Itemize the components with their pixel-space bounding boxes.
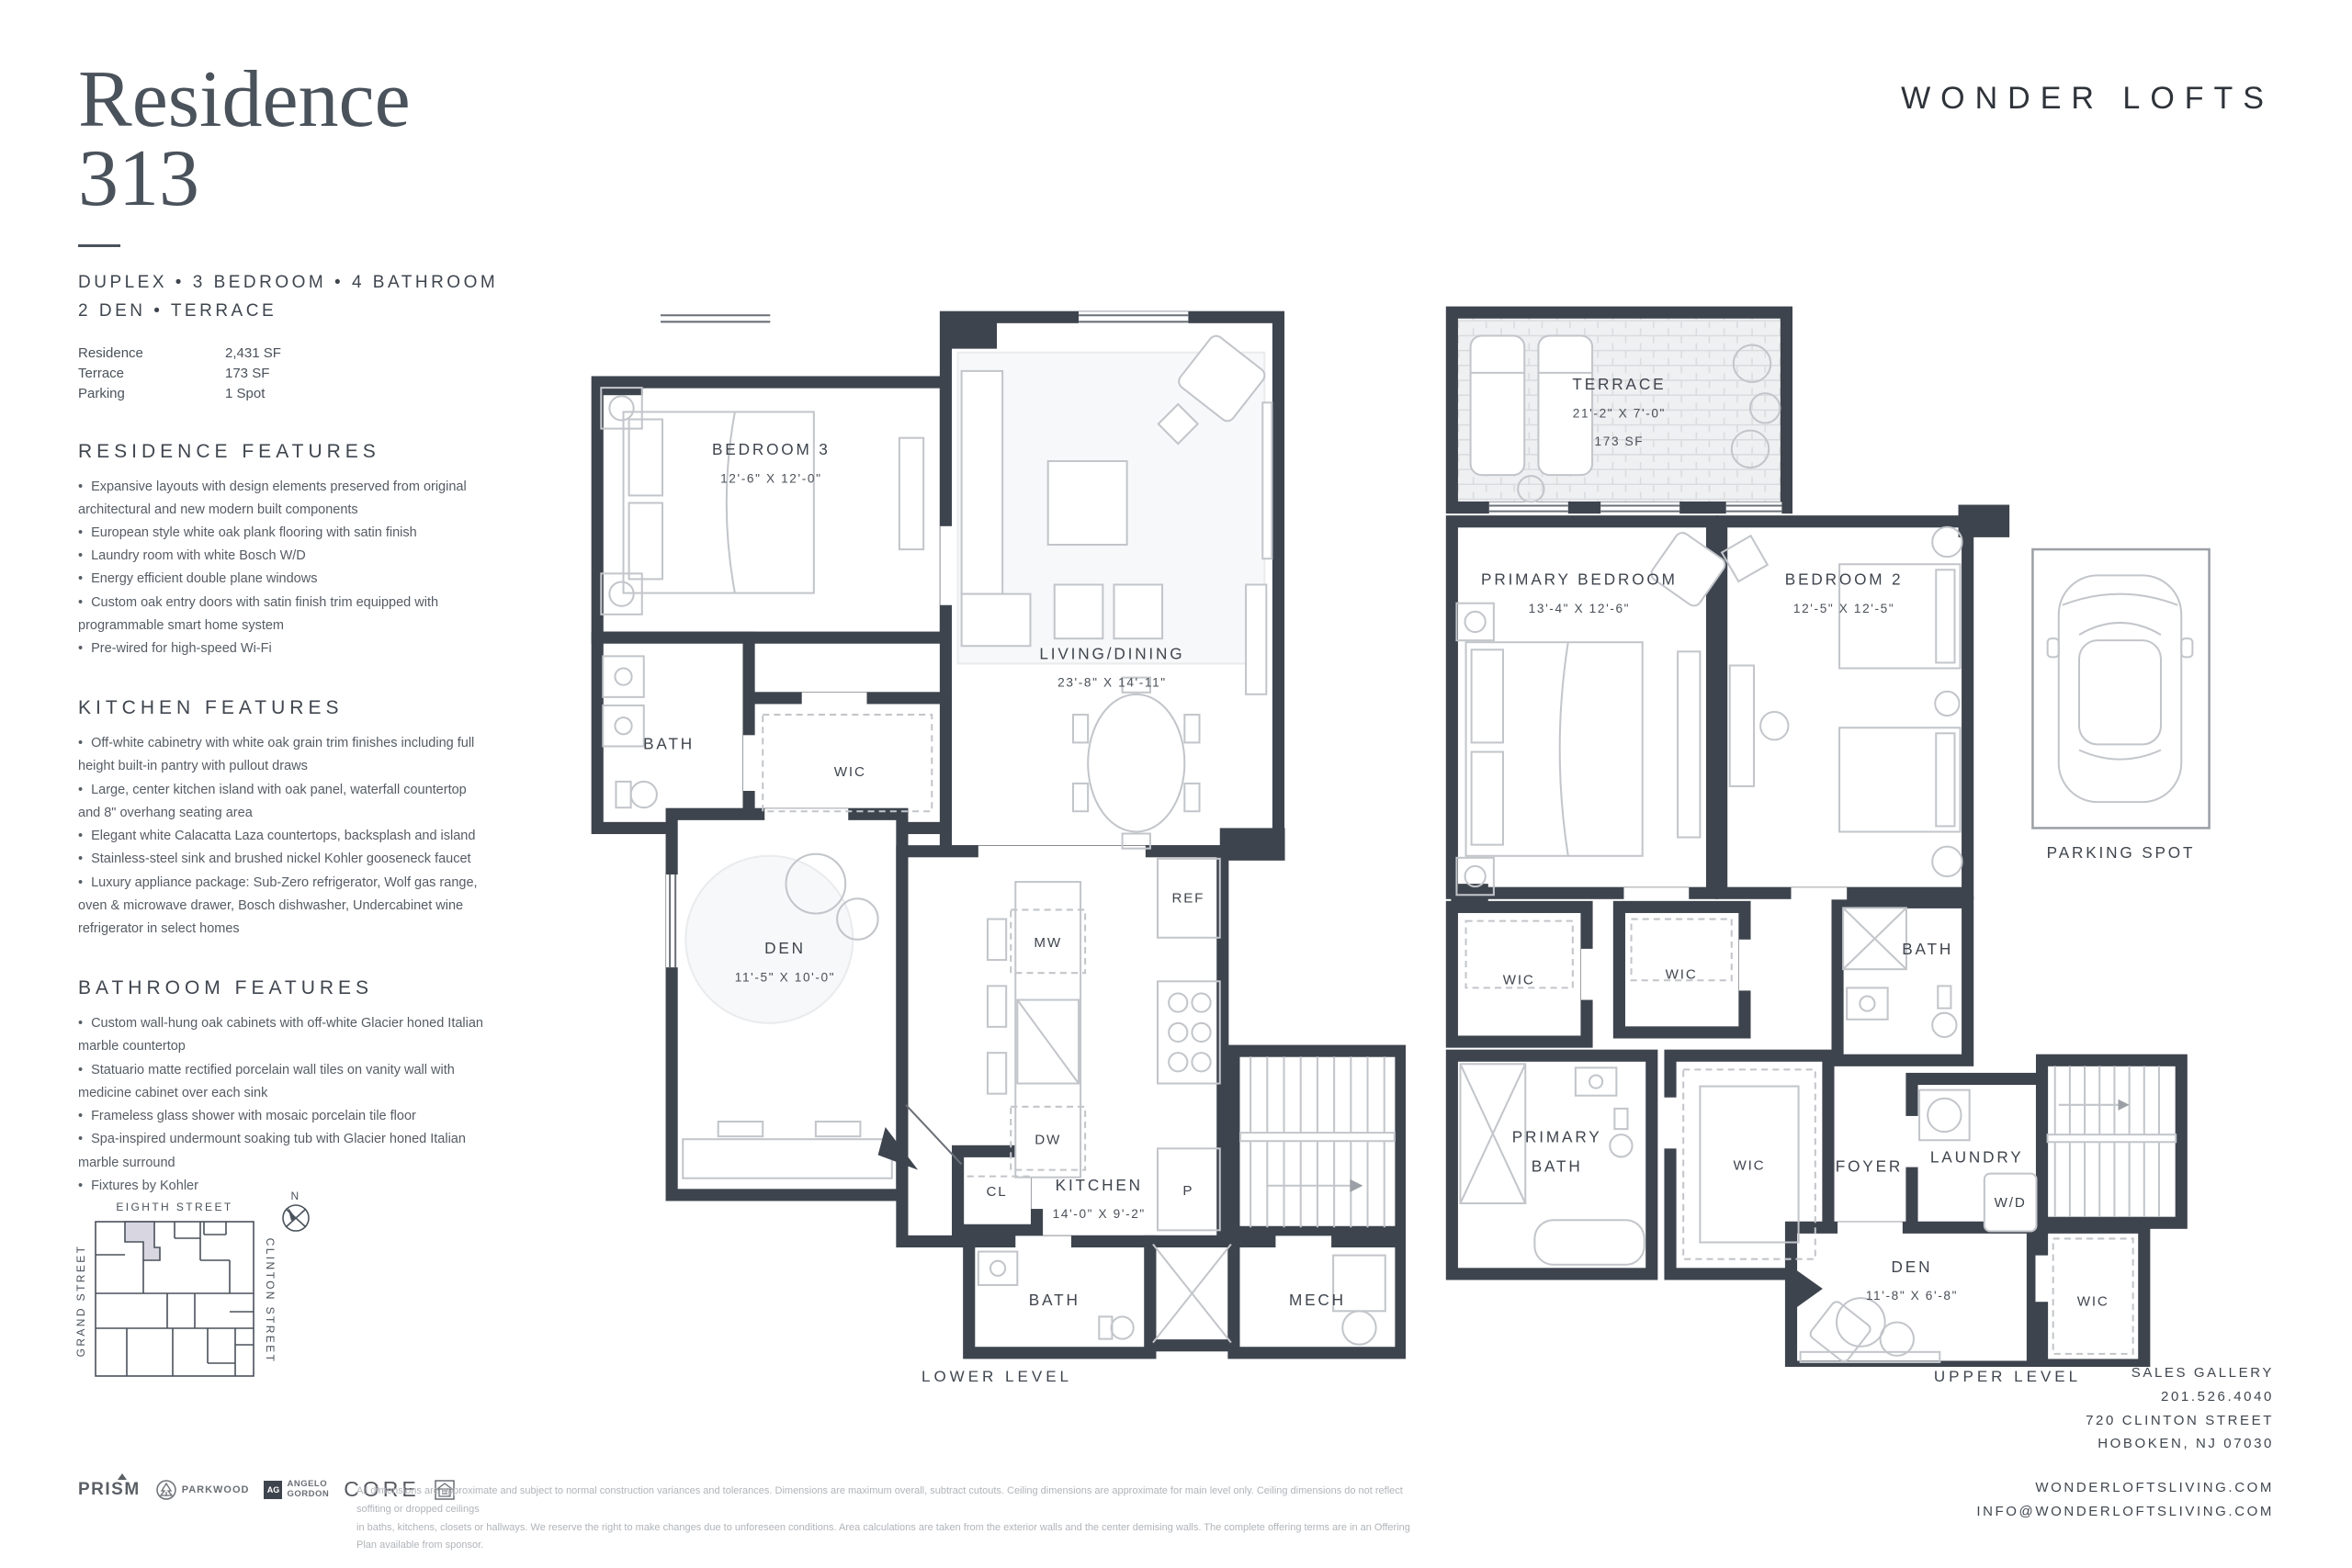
upper-wic-a-label: WIC xyxy=(1503,972,1535,987)
feature-item: Stainless-steel sink and brushed nickel … xyxy=(78,848,487,871)
upper-wic-d-label: WIC xyxy=(2077,1293,2109,1309)
lower-bath-label: BATH xyxy=(643,734,695,752)
page-title: Residence 313 xyxy=(78,61,501,219)
upper-primary-bedroom-dim: 13'-4" X 12'-6" xyxy=(1529,602,1630,615)
title-line2: 313 xyxy=(78,140,501,219)
angelo-gordon-mark-icon: AG xyxy=(264,1481,282,1499)
upper-wd-label: W/D xyxy=(1995,1195,2027,1211)
residence-features-heading: RESIDENCE FEATURES xyxy=(78,441,501,463)
bathroom-features-list: Custom wall-hung oak cabinets with off-w… xyxy=(78,1012,487,1198)
lower-bedroom3-label: BEDROOM 3 xyxy=(712,440,831,458)
spec-value: 1 Spot xyxy=(225,384,265,404)
upper-parking-label: PARKING SPOT xyxy=(2047,843,2196,862)
upper-bedroom2-label: BEDROOM 2 xyxy=(1785,570,1904,588)
feature-item: Elegant white Calacatta Laza countertops… xyxy=(78,825,487,848)
upper-primary-bath-label2: BATH xyxy=(1532,1157,1583,1176)
spec-value: 2,431 SF xyxy=(225,344,281,364)
lower-den-dim: 11'-5" X 10'-0" xyxy=(735,970,835,984)
upper-terrace-doors xyxy=(1489,502,1782,513)
feature-item: European style white oak plank flooring … xyxy=(78,522,487,545)
spec-value: 173 SF xyxy=(225,364,269,384)
lower-mech-label: MECH xyxy=(1289,1291,1346,1309)
parkwood-logo: PARKWOOD xyxy=(155,1479,250,1501)
upper-terrace-dim: 21'-2" X 7'-0" xyxy=(1573,406,1666,420)
lower-wic-label: WIC xyxy=(834,764,866,780)
parkwood-tree-icon xyxy=(155,1479,177,1501)
lower-cl-label: CL xyxy=(987,1184,1008,1200)
title-rule xyxy=(78,244,120,247)
disclaimer-line1: All dimensions are approximate and subje… xyxy=(356,1483,1422,1519)
upper-foyer-label: FOYER xyxy=(1836,1157,1903,1176)
lower-dw-label: DW xyxy=(1035,1132,1061,1147)
feature-item: Spa-inspired undermount soaking tub with… xyxy=(78,1128,487,1174)
angelo-gordon-logo: AG ANGELO GORDON xyxy=(264,1480,329,1499)
lower-level-caption: LOWER LEVEL xyxy=(859,1368,1135,1386)
lower-bath2-label: BATH xyxy=(1029,1291,1080,1309)
lower-kitchen-label: KITCHEN xyxy=(1056,1176,1143,1194)
unit-summary-line1: DUPLEX • 3 BEDROOM • 4 BATHROOM xyxy=(78,269,501,297)
spec-label: Residence xyxy=(78,344,225,364)
spec-label: Parking xyxy=(78,384,225,404)
compass-icon: N xyxy=(283,1190,309,1231)
lower-pantry-label: P xyxy=(1182,1183,1193,1199)
upper-den-label: DEN xyxy=(1892,1258,1933,1276)
upper-primary-bedroom-label: PRIMARY BEDROOM xyxy=(1481,570,1678,588)
contact-city: HOBOKEN, NJ 07030 xyxy=(1976,1432,2274,1456)
street-label-top: EIGHTH STREET xyxy=(116,1201,232,1213)
title-line1: Residence xyxy=(78,61,501,140)
street-label-right: CLINTON STREET xyxy=(264,1238,277,1364)
feature-item: Custom wall-hung oak cabinets with off-w… xyxy=(78,1012,487,1058)
upper-den-dim: 11'-8" X 6'-8" xyxy=(1866,1289,1958,1303)
contact-email: INFO@WONDERLOFTSLIVING.COM xyxy=(1976,1500,2274,1524)
spec-row-terrace: Terrace 173 SF xyxy=(78,364,501,384)
upper-level-floorplan: TERRACE 21'-2" X 7'-0" 173 SF PRIMARY BE… xyxy=(1438,299,2228,1367)
unit-summary: DUPLEX • 3 BEDROOM • 4 BATHROOM 2 DEN • … xyxy=(78,269,501,325)
upper-bedroom2-dim: 12'-5" X 12'-5" xyxy=(1793,602,1894,615)
lower-kitchen-dim: 14'-0" X 9'-2" xyxy=(1053,1207,1146,1221)
unit-summary-line2: 2 DEN • TERRACE xyxy=(78,298,501,325)
brand-logo: WONDER LOFTS xyxy=(1901,81,2274,117)
upper-parking-spot xyxy=(2032,549,2209,828)
upper-terrace-label: TERRACE xyxy=(1572,375,1666,393)
feature-item: Frameless glass shower with mosaic porce… xyxy=(78,1105,487,1128)
upper-bath-label: BATH xyxy=(1902,940,1953,958)
upper-laundry-label: LAUNDRY xyxy=(1930,1148,2024,1167)
compass-n: N xyxy=(290,1190,300,1202)
kitchen-features-list: Off-white cabinetry with white oak grain… xyxy=(78,732,487,941)
contact-address: 720 CLINTON STREET xyxy=(1976,1409,2274,1433)
feature-item: Expansive layouts with design elements p… xyxy=(78,476,487,522)
upper-terrace-sf: 173 SF xyxy=(1595,434,1645,448)
spec-label: Terrace xyxy=(78,364,225,384)
contact-block: SALES GALLERY 201.526.4040 720 CLINTON S… xyxy=(1976,1361,2274,1524)
contact-website: WONDERLOFTSLIVING.COM xyxy=(1976,1476,2274,1500)
spec-table: Residence 2,431 SF Terrace 173 SF Parkin… xyxy=(78,344,501,403)
lower-den-label: DEN xyxy=(764,939,806,957)
angelo-line1: ANGELO xyxy=(287,1480,329,1489)
prism-logo: PRISM xyxy=(78,1480,141,1500)
lower-level-floorplan: BEDROOM 3 12'-6" X 12'-0" LIVING/DINING … xyxy=(579,299,1406,1367)
lower-living-label: LIVING/DINING xyxy=(1039,644,1184,662)
disclaimer-line2: in baths, kitchens, closets or hallways.… xyxy=(356,1519,1422,1556)
upper-wic-c-label: WIC xyxy=(1734,1158,1766,1174)
site-location-map: EIGHTH STREET GRAND STREET CLINTON STREE… xyxy=(55,1183,349,1433)
kitchen-features-heading: KITCHEN FEATURES xyxy=(78,697,501,719)
feature-item: Off-white cabinetry with white oak grain… xyxy=(78,732,487,778)
info-column: Residence 313 DUPLEX • 3 BEDROOM • 4 BAT… xyxy=(78,61,501,1198)
feature-item: Large, center kitchen island with oak pa… xyxy=(78,779,487,825)
bathroom-features-heading: BATHROOM FEATURES xyxy=(78,977,501,999)
feature-item: Custom oak entry doors with satin finish… xyxy=(78,592,487,637)
feature-item: Pre-wired for high-speed Wi-Fi xyxy=(78,637,487,660)
lower-living-dim: 23'-8" X 14'-11" xyxy=(1057,676,1167,690)
feature-item: Laundry room with white Bosch W/D xyxy=(78,545,487,568)
spec-row-parking: Parking 1 Spot xyxy=(78,384,501,404)
lower-bedroom3-dim: 12'-6" X 12'-0" xyxy=(720,471,821,485)
feature-item: Energy efficient double plane windows xyxy=(78,568,487,591)
parkwood-label: PARKWOOD xyxy=(182,1484,250,1495)
contact-sales-gallery: SALES GALLERY xyxy=(1976,1361,2274,1385)
angelo-line2: GORDON xyxy=(287,1490,329,1499)
residence-features-list: Expansive layouts with design elements p… xyxy=(78,476,487,661)
street-label-left: GRAND STREET xyxy=(74,1245,87,1358)
upper-primary-bath-label1: PRIMARY xyxy=(1512,1127,1602,1145)
lower-mw-label: MW xyxy=(1034,935,1062,951)
spec-row-residence: Residence 2,431 SF xyxy=(78,344,501,364)
feature-item: Statuario matte rectified porcelain wall… xyxy=(78,1059,487,1105)
legal-disclaimer: All dimensions are approximate and subje… xyxy=(356,1483,1422,1555)
site-map-lots xyxy=(96,1222,254,1376)
contact-phone: 201.526.4040 xyxy=(1976,1385,2274,1409)
upper-wic-b-label: WIC xyxy=(1666,966,1698,982)
feature-item: Luxury appliance package: Sub-Zero refri… xyxy=(78,872,487,942)
lower-ref-label: REF xyxy=(1171,890,1204,906)
